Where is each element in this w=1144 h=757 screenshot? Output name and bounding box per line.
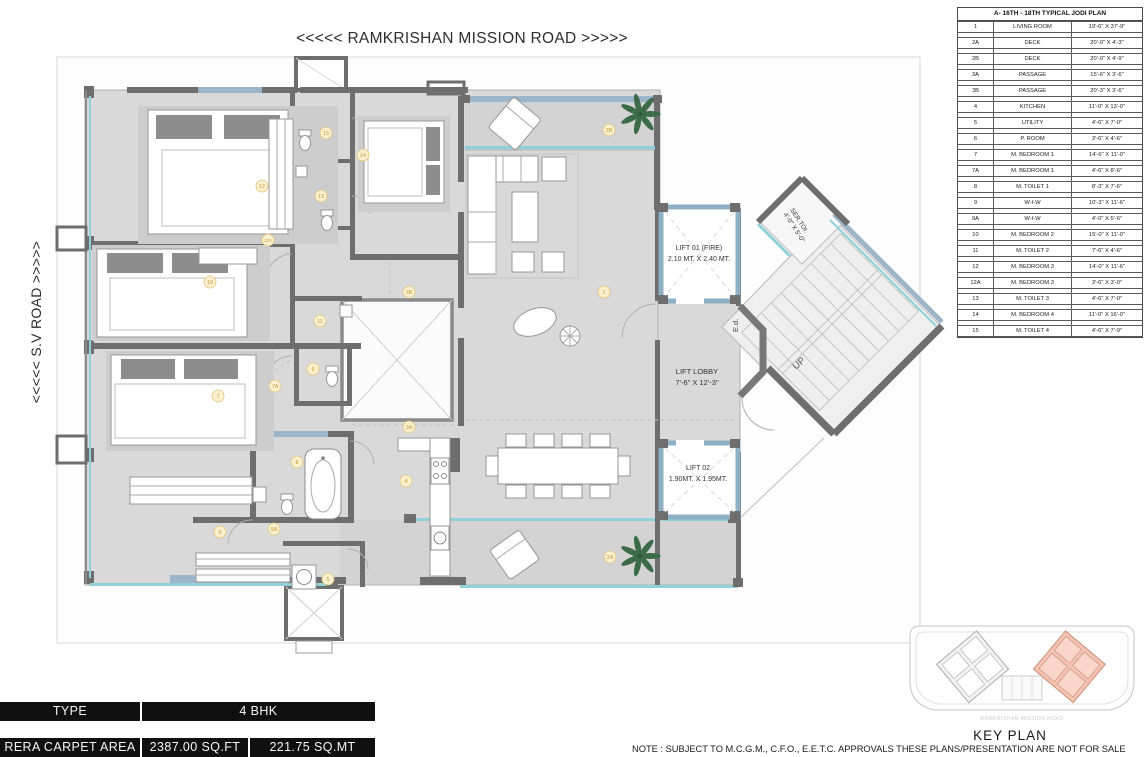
table-cell: M. BEDROOM 3 bbox=[994, 262, 1072, 272]
table-row: 2ADECK20'-0" X 4'-3" bbox=[958, 37, 1142, 49]
room-marker-5: 5 bbox=[322, 573, 334, 585]
room-marker-6: 6 bbox=[307, 363, 319, 375]
table-cell: 5 bbox=[958, 118, 994, 128]
table-cell: 14'-0" X 11'-6" bbox=[1072, 262, 1142, 272]
room-marker-2B: 2B bbox=[603, 124, 615, 136]
table-row: 12M. BEDROOM 314'-0" X 11'-6" bbox=[958, 261, 1142, 273]
svg-text:11: 11 bbox=[317, 319, 323, 325]
table-cell: 9 bbox=[958, 198, 994, 208]
wardrobe bbox=[269, 119, 293, 229]
table-row-spacer bbox=[958, 97, 1142, 101]
table-row: 11M. TOILET 27'-6" X 4'-6" bbox=[958, 245, 1142, 257]
type-bar: TYPE 4 BHK bbox=[0, 702, 375, 721]
table-row: 3BPASSAGE20'-3" X 3'-6" bbox=[958, 85, 1142, 97]
room-marker-13: 13 bbox=[315, 190, 327, 202]
floorplan-sheet: <<<<< RAMKRISHAN MISSION ROAD >>>>> <<<<… bbox=[0, 0, 1144, 757]
rera-bar: RERA CARPET AREA 2387.00 SQ.FT 221.75 SQ… bbox=[0, 738, 375, 757]
schedule-title: A- 16TH - 18TH TYPICAL JODI PLAN bbox=[958, 8, 1142, 21]
table-cell: 6 bbox=[958, 134, 994, 144]
table-row: 10M. BEDROOM 215'-0" X 11'-0" bbox=[958, 229, 1142, 241]
lift1-size: 2.10 MT. X 2.40 MT. bbox=[668, 256, 730, 263]
table-row: 12AM. BEDROOM 33'-6" X 3'-0" bbox=[958, 277, 1142, 289]
table-cell: 15'-6" X 3'-6" bbox=[1072, 70, 1142, 80]
rera-sqft: 2387.00 SQ.FT bbox=[142, 738, 248, 757]
svg-text:13: 13 bbox=[318, 194, 324, 200]
table-row-spacer bbox=[958, 177, 1142, 181]
table-cell: 12A bbox=[958, 278, 994, 288]
svg-text:6: 6 bbox=[312, 367, 315, 373]
room-marker-7A: 7A bbox=[269, 380, 281, 392]
table-row: 7M. BEDROOM 114'-6" X 11'-0" bbox=[958, 149, 1142, 161]
table-cell: DECK bbox=[994, 38, 1072, 48]
table-row: 6P. ROOM3'-6" X 4'-6" bbox=[958, 133, 1142, 145]
svg-text:2B: 2B bbox=[606, 128, 613, 134]
table-row-spacer bbox=[958, 65, 1142, 69]
svg-text:2A: 2A bbox=[607, 555, 614, 561]
table-cell: 2A bbox=[958, 38, 994, 48]
room-marker-1: 1 bbox=[598, 286, 610, 298]
keyplan-title: KEY PLAN bbox=[930, 728, 1090, 743]
table-cell: 8'-3" X 7'-6" bbox=[1072, 182, 1142, 192]
svg-text:7A: 7A bbox=[272, 384, 279, 390]
washing-machine bbox=[292, 565, 316, 589]
table-row: 5UTILITY4'-6" X 7'-0" bbox=[958, 117, 1142, 129]
approval-note: NOTE : SUBJECT TO M.C.G.M., C.F.O., E.E.… bbox=[632, 744, 1144, 754]
table-cell: KITCHEN bbox=[994, 102, 1072, 112]
table-row-spacer bbox=[958, 305, 1142, 309]
table-cell: 20'-0" X 4'-3" bbox=[1072, 38, 1142, 48]
type-label: TYPE bbox=[0, 702, 140, 721]
table-cell: UTILITY bbox=[994, 118, 1072, 128]
table-cell: 3A bbox=[958, 70, 994, 80]
table-cell: 4'-6" X 7'-0" bbox=[1072, 294, 1142, 304]
svg-text:3A: 3A bbox=[406, 425, 413, 431]
room-marker-9: 9 bbox=[214, 526, 226, 538]
room-marker-9A: 9A bbox=[268, 523, 280, 535]
table-cell: LIVING ROOM bbox=[994, 22, 1072, 32]
lift-lobby-label: LIFT LOBBY bbox=[676, 367, 718, 376]
table-cell: PASSAGE bbox=[994, 70, 1072, 80]
table-cell: 4'-6" X 8'-6" bbox=[1072, 166, 1142, 176]
table-cell: 15 bbox=[958, 326, 994, 336]
rera-sqmt: 221.75 SQ.MT bbox=[250, 738, 375, 757]
table-cell: W-I-W bbox=[994, 198, 1072, 208]
svg-text:15: 15 bbox=[323, 131, 329, 137]
table-cell: M. BEDROOM 2 bbox=[994, 230, 1072, 240]
table-row: 2BDECK20'-0" X 4'-9" bbox=[958, 53, 1142, 65]
table-cell: P. ROOM bbox=[994, 134, 1072, 144]
room-marker-12: 12 bbox=[256, 180, 268, 192]
room-marker-8: 8 bbox=[291, 456, 303, 468]
table-cell: M. BEDROOM 1 bbox=[994, 166, 1072, 176]
table-cell: W-I-W bbox=[994, 214, 1072, 224]
wardrobe bbox=[130, 477, 252, 504]
table-cell: 12 bbox=[958, 262, 994, 272]
table-cell: M. BEDROOM 4 bbox=[994, 310, 1072, 320]
table-row-spacer bbox=[958, 209, 1142, 213]
svg-text:10: 10 bbox=[207, 280, 213, 286]
lift1-label: LIFT 01 (FIRE) bbox=[676, 245, 723, 252]
table-row: 8M. TOILET 18'-3" X 7'-6" bbox=[958, 181, 1142, 193]
svg-text:8: 8 bbox=[296, 460, 299, 466]
table-cell: 20'-0" X 4'-9" bbox=[1072, 54, 1142, 64]
table-row-spacer bbox=[958, 241, 1142, 245]
keyplan-podium bbox=[1002, 676, 1042, 700]
table-cell: 7'-6" X 4'-6" bbox=[1072, 246, 1142, 256]
keyplan-road-label: RAMKRISHAN MISSION ROAD bbox=[980, 716, 1063, 722]
table-row: 14M. BEDROOM 411'-0" X 16'-0" bbox=[958, 309, 1142, 321]
table-row: 1LIVING ROOM19'-6" X 37'-9" bbox=[958, 21, 1142, 33]
table-row-spacer bbox=[958, 161, 1142, 165]
electrical-duct-label: E.d. bbox=[731, 319, 740, 332]
dresser bbox=[199, 248, 257, 264]
table-row: 4KITCHEN11'-0" X 13'-0" bbox=[958, 101, 1142, 113]
table-cell: M. TOILET 3 bbox=[994, 294, 1072, 304]
bed-master-bedroom-1 bbox=[106, 351, 274, 451]
table-cell: 9A bbox=[958, 214, 994, 224]
table-row: 7AM. BEDROOM 14'-6" X 8'-6" bbox=[958, 165, 1142, 177]
table-row-spacer bbox=[958, 81, 1142, 85]
svg-text:12: 12 bbox=[259, 184, 265, 190]
table-cell: 4'-6" X 7'-0" bbox=[1072, 118, 1142, 128]
table-row-spacer bbox=[958, 145, 1142, 149]
table-cell: 4'-6" X 7'-9" bbox=[1072, 326, 1142, 336]
lift2-size: 1.90MT. X 1.95MT. bbox=[669, 476, 727, 483]
bathtub bbox=[305, 449, 341, 519]
table-row-spacer bbox=[958, 33, 1142, 37]
room-marker-7: 7 bbox=[212, 390, 224, 402]
table-row: 9W-I-W10'-3" X 11'-6" bbox=[958, 197, 1142, 209]
table-cell: M. TOILET 4 bbox=[994, 326, 1072, 336]
svg-text:4: 4 bbox=[405, 479, 408, 485]
table-cell: 4 bbox=[958, 102, 994, 112]
rera-label: RERA CARPET AREA bbox=[0, 738, 140, 757]
table-cell: M. TOILET 2 bbox=[994, 246, 1072, 256]
table-cell: DECK bbox=[994, 54, 1072, 64]
svg-text:12A: 12A bbox=[264, 238, 272, 243]
table-cell: 13 bbox=[958, 294, 994, 304]
table-cell: 3'-6" X 3'-0" bbox=[1072, 278, 1142, 288]
table-row-spacer bbox=[958, 225, 1142, 229]
type-value: 4 BHK bbox=[142, 702, 375, 721]
table-cell: 4'-0" X 5'-6" bbox=[1072, 214, 1142, 224]
table-cell: 3'-6" X 4'-6" bbox=[1072, 134, 1142, 144]
table-cell: 3B bbox=[958, 86, 994, 96]
svg-text:3B: 3B bbox=[406, 290, 413, 296]
table-cell: 2B bbox=[958, 54, 994, 64]
table-row-spacer bbox=[958, 129, 1142, 133]
room-marker-12A: 12A bbox=[262, 234, 274, 246]
key-plan: RAMKRISHAN MISSION ROAD bbox=[900, 618, 1144, 742]
table-row-spacer bbox=[958, 113, 1142, 117]
table-row: 13M. TOILET 34'-6" X 7'-0" bbox=[958, 293, 1142, 305]
lift-lobby-size: 7'-6" X 12'-3" bbox=[675, 378, 719, 387]
table-row-spacer bbox=[958, 257, 1142, 261]
room-schedule-table: A- 16TH - 18TH TYPICAL JODI PLAN 1LIVING… bbox=[957, 7, 1143, 338]
svg-text:7: 7 bbox=[217, 394, 220, 400]
svg-text:14: 14 bbox=[360, 153, 366, 159]
table-row: 3APASSAGE15'-6" X 3'-6" bbox=[958, 69, 1142, 81]
table-row-spacer bbox=[958, 193, 1142, 197]
room-marker-14: 14 bbox=[357, 149, 369, 161]
table-cell: 7A bbox=[958, 166, 994, 176]
table-cell: 14 bbox=[958, 310, 994, 320]
table-cell: 11'-0" X 16'-0" bbox=[1072, 310, 1142, 320]
svg-text:9A: 9A bbox=[271, 527, 278, 533]
table-row-spacer bbox=[958, 289, 1142, 293]
bed-master-bedroom-3 bbox=[138, 106, 338, 244]
svg-text:9: 9 bbox=[219, 530, 222, 536]
table-row-spacer bbox=[958, 49, 1142, 53]
table-row: 9AW-I-W4'-0" X 5'-6" bbox=[958, 213, 1142, 225]
svg-text:5: 5 bbox=[327, 577, 330, 583]
table-row-spacer bbox=[958, 321, 1142, 325]
table-row: 15M. TOILET 44'-6" X 7'-9" bbox=[958, 325, 1142, 337]
room-marker-10: 10 bbox=[204, 276, 216, 288]
road-label-left: <<<<< S.V ROAD >>>>> bbox=[28, 241, 44, 403]
table-cell: M. BEDROOM 1 bbox=[994, 150, 1072, 160]
table-cell: 11 bbox=[958, 246, 994, 256]
table-cell: 10'-3" X 11'-6" bbox=[1072, 198, 1142, 208]
table-cell: 15'-0" X 11'-0" bbox=[1072, 230, 1142, 240]
table-cell: 8 bbox=[958, 182, 994, 192]
table-cell: 14'-6" X 11'-0" bbox=[1072, 150, 1142, 160]
room-marker-4: 4 bbox=[400, 475, 412, 487]
room-marker-3B: 3B bbox=[403, 286, 415, 298]
table-cell: 7 bbox=[958, 150, 994, 160]
table-cell: PASSAGE bbox=[994, 86, 1072, 96]
room-marker-2A: 2A bbox=[604, 551, 616, 563]
bed-master-bedroom-4 bbox=[358, 116, 450, 212]
room-marker-11: 11 bbox=[314, 315, 326, 327]
lift2-label: LIFT 02 bbox=[686, 465, 710, 472]
table-cell: M. BEDROOM 3 bbox=[994, 278, 1072, 288]
table-cell: 11'-0" X 13'-0" bbox=[1072, 102, 1142, 112]
table-cell: 20'-3" X 3'-6" bbox=[1072, 86, 1142, 96]
table-cell: 10 bbox=[958, 230, 994, 240]
table-row-spacer bbox=[958, 273, 1142, 277]
room-marker-15: 15 bbox=[320, 127, 332, 139]
room-marker-3A: 3A bbox=[403, 421, 415, 433]
table-cell: M. TOILET 1 bbox=[994, 182, 1072, 192]
svg-text:1: 1 bbox=[603, 290, 606, 296]
table-cell: 1 bbox=[958, 22, 994, 32]
road-label-top: <<<<< RAMKRISHAN MISSION ROAD >>>>> bbox=[296, 30, 628, 47]
table-cell: 19'-6" X 37'-9" bbox=[1072, 22, 1142, 32]
